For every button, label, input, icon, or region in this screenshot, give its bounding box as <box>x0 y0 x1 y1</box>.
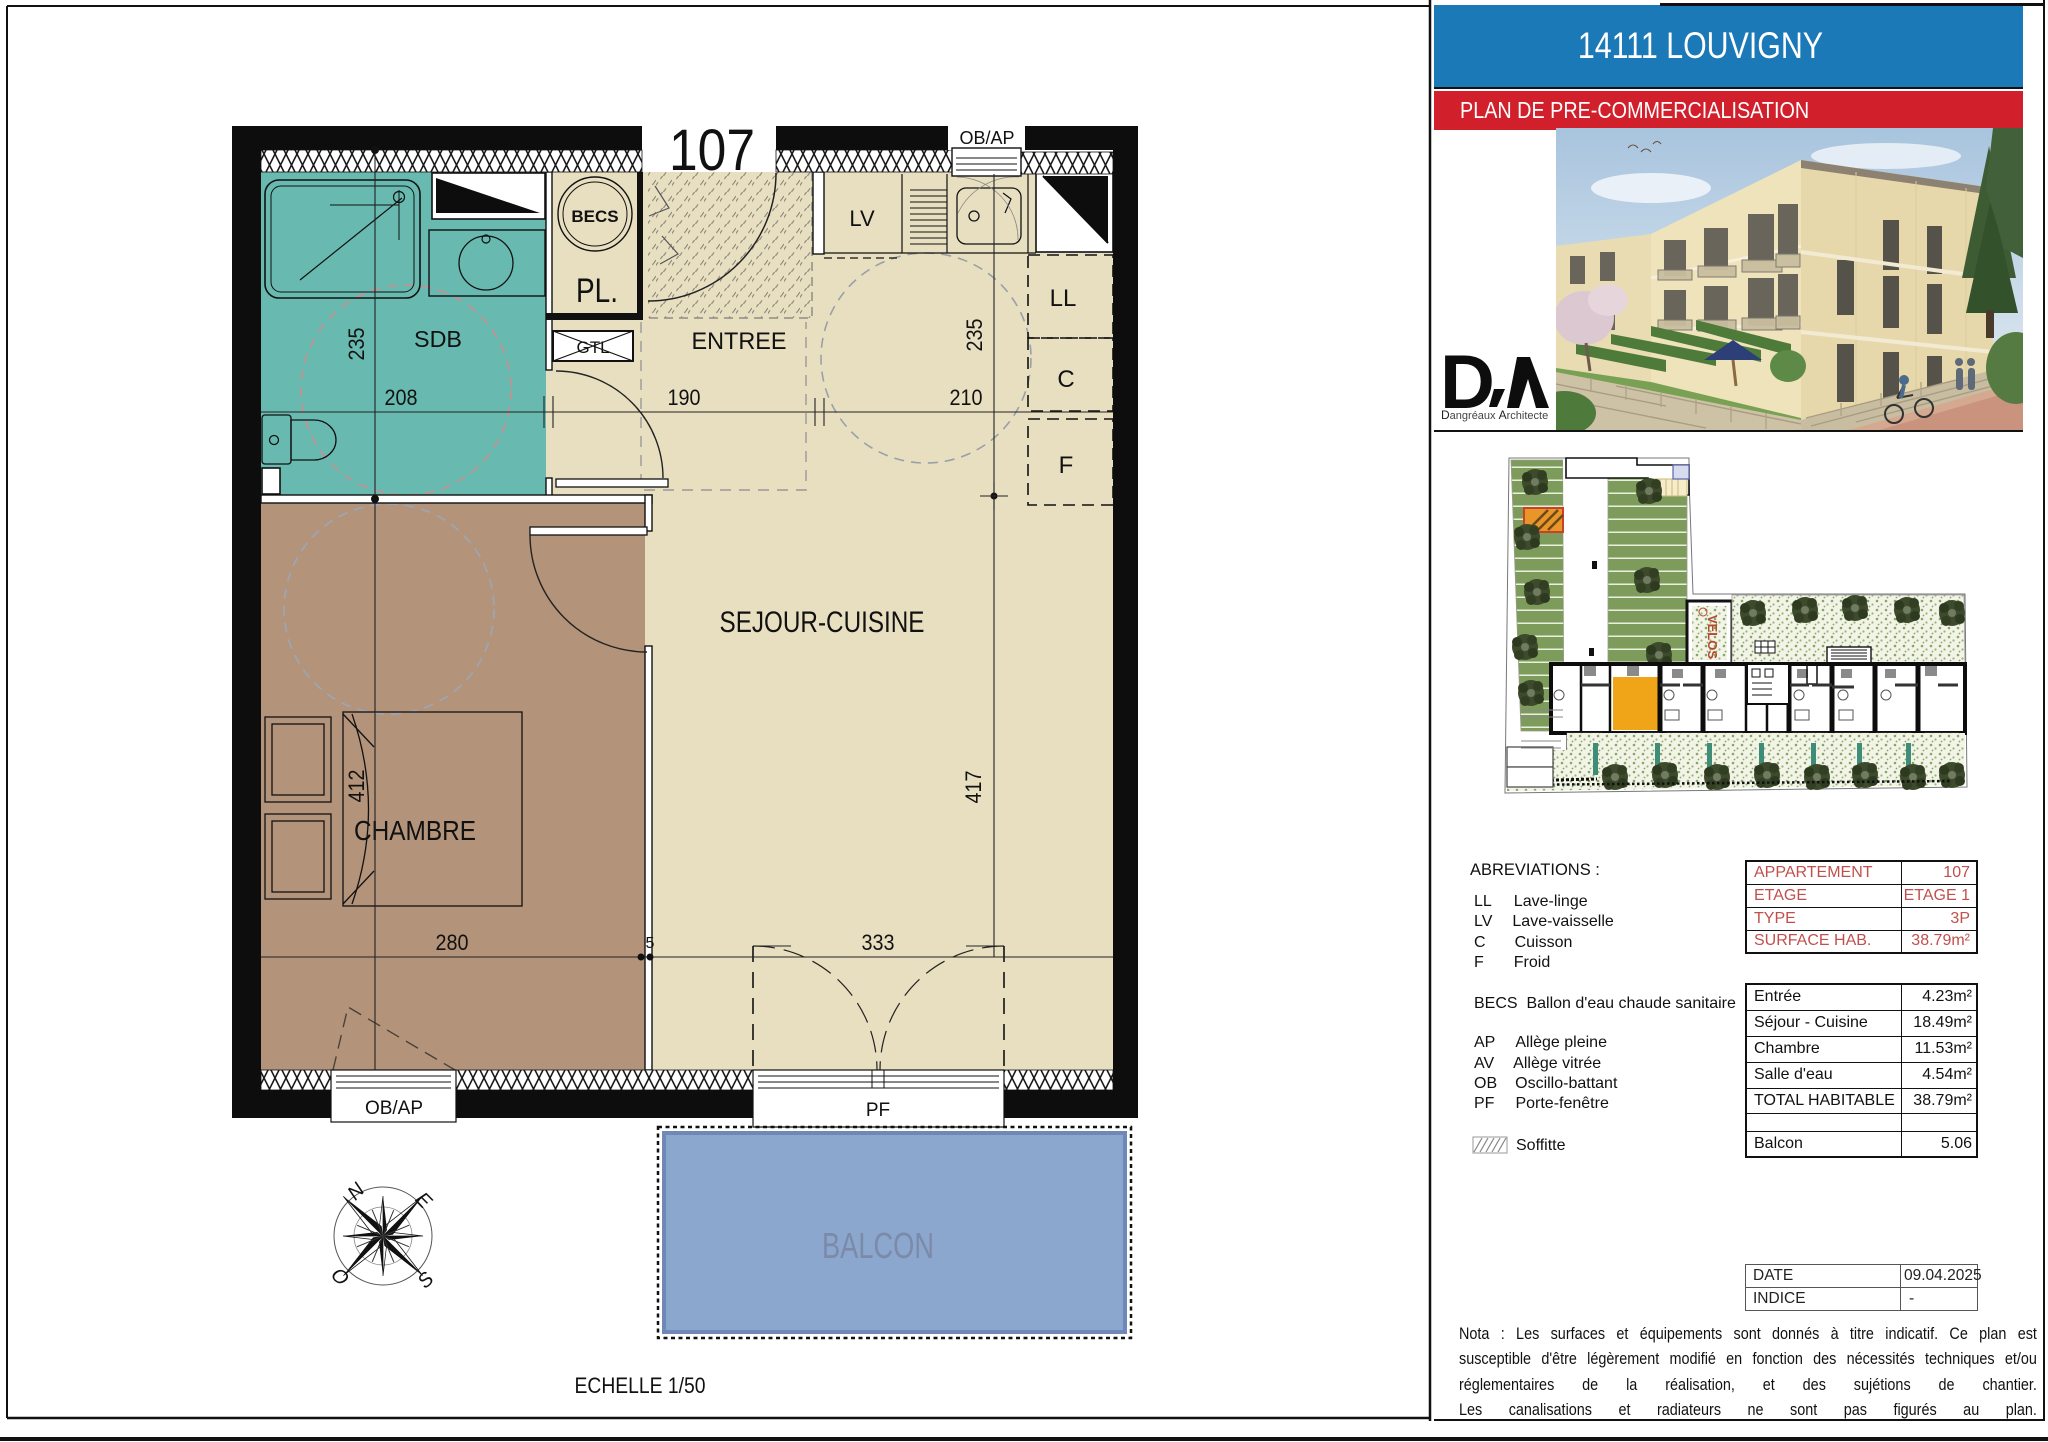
svg-text:107: 107 <box>669 118 755 183</box>
svg-text:ECHELLE 1/50: ECHELLE 1/50 <box>575 1373 706 1398</box>
svg-text:CHAMBRE: CHAMBRE <box>354 815 476 846</box>
svg-text:C: C <box>1057 366 1074 393</box>
svg-text:OB/AP: OB/AP <box>365 1098 423 1119</box>
svg-text:190: 190 <box>668 385 701 410</box>
svg-text:VELOS: VELOS <box>1705 615 1720 659</box>
svg-text:E: E <box>411 1188 436 1213</box>
svg-text:F: F <box>1059 452 1074 479</box>
svg-text:GTL: GTL <box>576 338 609 357</box>
svg-text:O: O <box>326 1264 353 1291</box>
svg-text:SEJOUR-CUISINE: SEJOUR-CUISINE <box>720 606 925 639</box>
svg-text:235: 235 <box>962 319 987 352</box>
svg-text:235: 235 <box>344 328 369 361</box>
svg-text:280: 280 <box>436 930 469 955</box>
svg-text:210: 210 <box>950 385 983 410</box>
svg-text:BALCON: BALCON <box>822 1225 934 1266</box>
svg-text:333: 333 <box>862 930 895 955</box>
svg-text:PF: PF <box>866 1100 890 1121</box>
svg-text:208: 208 <box>385 385 418 410</box>
svg-text:Dangréaux Architecte: Dangréaux Architecte <box>1441 408 1548 422</box>
svg-text:5: 5 <box>646 935 655 952</box>
svg-text:417: 417 <box>961 771 986 804</box>
svg-text:PL.: PL. <box>576 272 618 310</box>
svg-text:LL: LL <box>1050 285 1077 312</box>
svg-text:BECS: BECS <box>571 207 618 226</box>
svg-text:SDB: SDB <box>414 326 462 352</box>
svg-text:OB/AP: OB/AP <box>959 128 1014 148</box>
svg-text:412: 412 <box>344 770 369 803</box>
svg-text:LV: LV <box>849 206 875 231</box>
svg-text:ENTREE: ENTREE <box>692 328 787 355</box>
